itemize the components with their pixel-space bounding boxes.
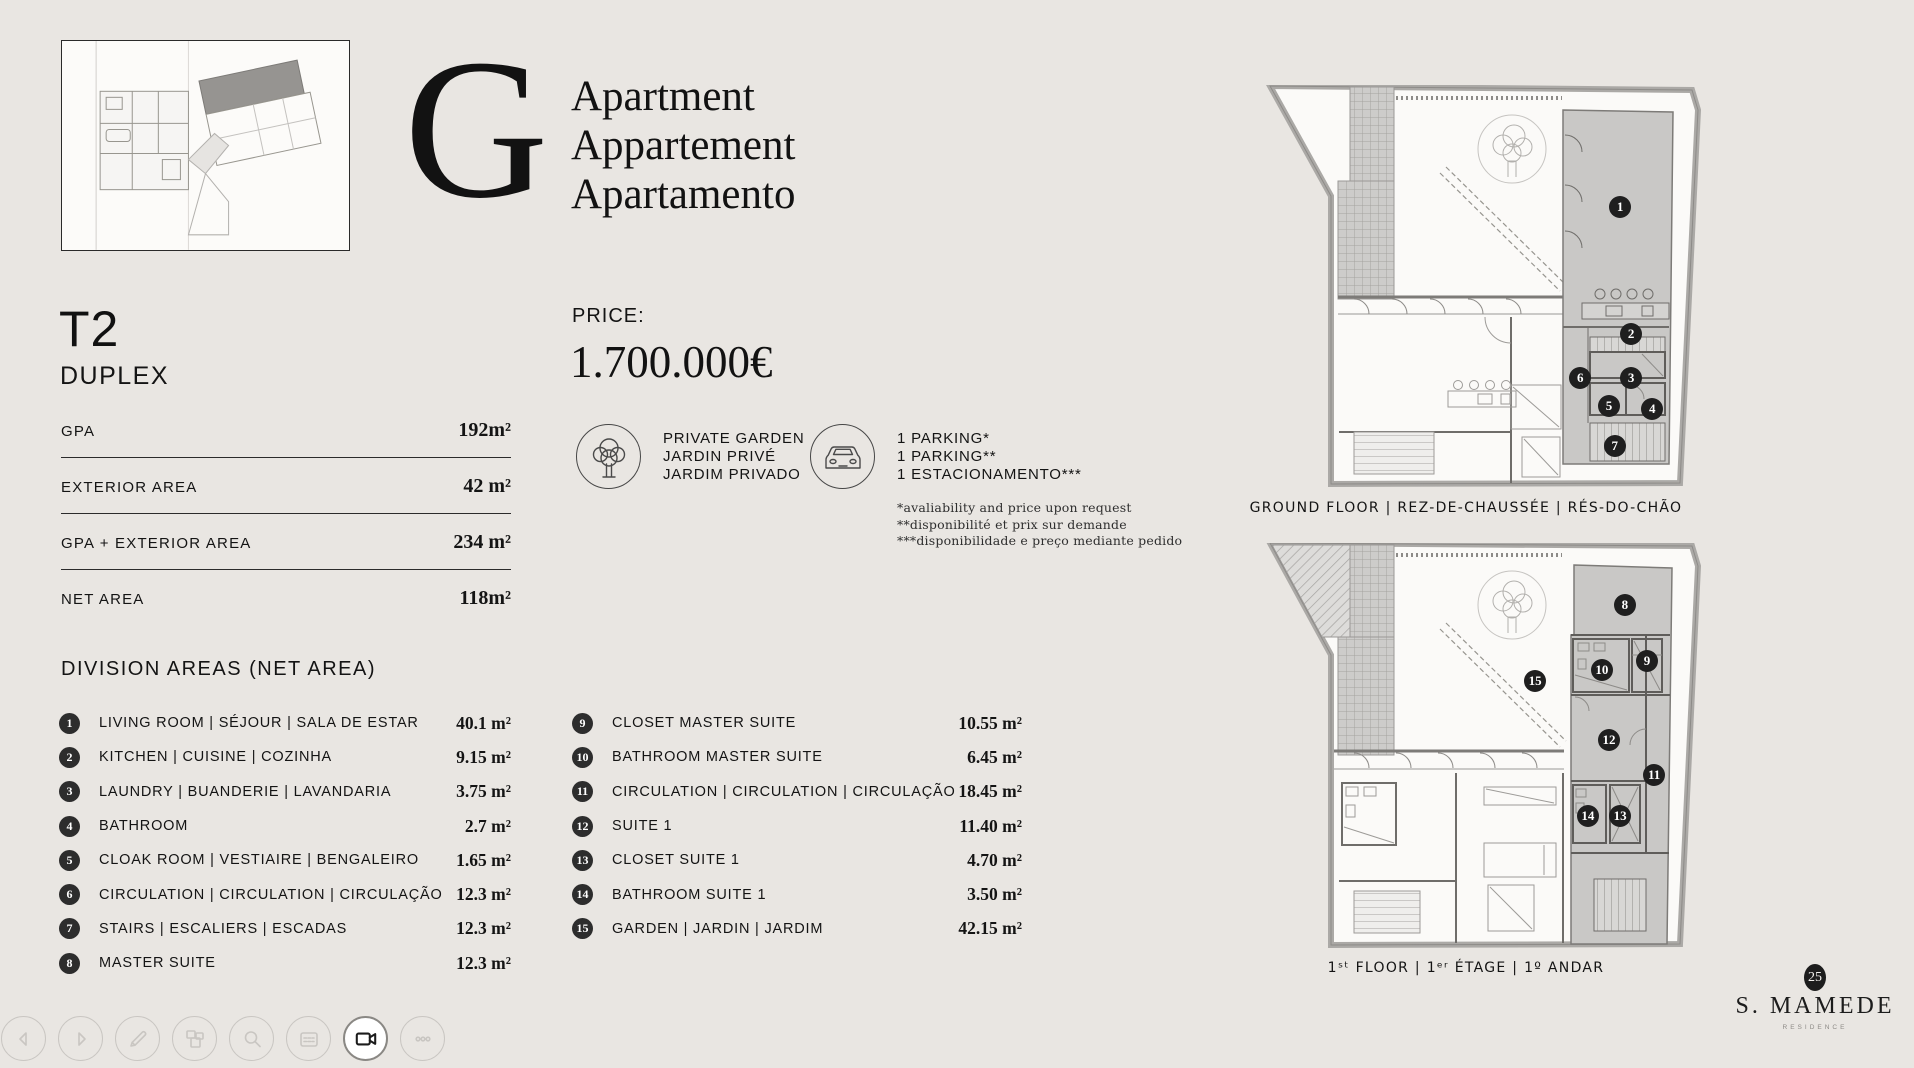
price-value: 1.700.000€ [570, 336, 773, 388]
room-number-badge: 11 [572, 781, 593, 802]
page: G Apartment Appartement Apartamento T2 D… [0, 0, 1914, 1068]
room-label: CLOSET SUITE 1 [612, 852, 740, 868]
area-row: EXTERIOR AREA42 m² [61, 458, 511, 514]
room-number-badge: 6 [59, 884, 80, 905]
more-button[interactable] [400, 1016, 445, 1061]
title-line-fr: Appartement [571, 121, 795, 170]
division-row: 14BATHROOM SUITE 13.50 m² [572, 877, 1022, 911]
room-area-value: 6.45 m² [967, 747, 1022, 768]
room-area-value: 40.1 m² [456, 713, 511, 734]
room-area-value: 1.65 m² [456, 850, 511, 871]
brand-logo: 25 S. MAMEDE RESIDENCE [1733, 964, 1897, 1031]
previous-icon [12, 1027, 36, 1051]
room-label: GARDEN | JARDIN | JARDIM [612, 921, 823, 937]
room-label: KITCHEN | CUISINE | COZINHA [99, 749, 332, 765]
ground-floor-caption: GROUND FLOOR | REZ-DE-CHAUSSÉE | RÉS-DO-… [1226, 500, 1706, 516]
room-label: CIRCULATION | CIRCULATION | CIRCULAÇÃO [612, 784, 956, 800]
garden-label-fr: JARDIN PRIVÉ [663, 448, 805, 466]
unit-layout: DUPLEX [60, 362, 169, 391]
room-label: CLOSET MASTER SUITE [612, 715, 796, 731]
room-area-value: 18.45 m² [958, 781, 1022, 802]
room-label: CIRCULATION | CIRCULATION | CIRCULAÇÃO [99, 887, 443, 903]
title-line-pt: Apartamento [571, 170, 795, 219]
area-label: EXTERIOR AREA [61, 479, 197, 496]
more-icon [411, 1027, 435, 1051]
area-label: GPA + EXTERIOR AREA [61, 535, 252, 552]
room-number-badge: 8 [59, 953, 80, 974]
parking-label-fr: 1 PARKING** [897, 448, 1082, 466]
room-label: MASTER SUITE [99, 955, 216, 971]
division-areas-heading: DIVISION AREAS (NET AREA) [61, 658, 376, 681]
parking-label-pt: 1 ESTACIONAMENTO*** [897, 466, 1082, 484]
private-garden-feature [576, 424, 641, 489]
site-plan-thumbnail [61, 40, 350, 251]
room-label: SUITE 1 [612, 818, 672, 834]
parking-labels: 1 PARKING* 1 PARKING** 1 ESTACIONAMENTO*… [897, 430, 1082, 485]
apartment-letter: G [404, 30, 548, 230]
unit-type: T2 [59, 300, 119, 358]
area-row: GPA192m² [61, 402, 511, 458]
summary-areas-table: GPA192m²EXTERIOR AREA42 m²GPA + EXTERIOR… [61, 402, 511, 625]
next-icon [69, 1027, 93, 1051]
footnote-1: *avaliability and price upon request [897, 500, 1182, 517]
area-value: 42 m² [463, 475, 511, 498]
room-number-badge: 12 [572, 816, 593, 837]
room-area-value: 42.15 m² [958, 918, 1022, 939]
division-row: 6CIRCULATION | CIRCULATION | CIRCULAÇÃO1… [59, 877, 511, 911]
site-plan-thumbnail-drawing [62, 41, 349, 250]
room-area-value: 10.55 m² [958, 713, 1022, 734]
notes-icon [297, 1027, 321, 1051]
room-area-value: 4.70 m² [967, 850, 1022, 871]
area-row: GPA + EXTERIOR AREA234 m² [61, 514, 511, 570]
room-number-badge: 2 [59, 747, 80, 768]
room-area-value: 12.3 m² [456, 953, 511, 974]
room-number-badge: 10 [572, 747, 593, 768]
garden-labels: PRIVATE GARDEN JARDIN PRIVÉ JARDIM PRIVA… [663, 430, 805, 485]
apartment-title: Apartment Appartement Apartamento [571, 72, 795, 219]
room-label: LAUNDRY | BUANDERIE | LAVANDARIA [99, 784, 391, 800]
room-number-badge: 5 [59, 850, 80, 871]
room-area-value: 12.3 m² [456, 918, 511, 939]
viewer-toolbar [1, 1016, 445, 1061]
pages-icon [183, 1027, 207, 1051]
room-area-value: 3.50 m² [967, 884, 1022, 905]
first-floor-plan-drawing [1226, 543, 1706, 957]
title-line-en: Apartment [571, 72, 795, 121]
division-areas-right-column: 9CLOSET MASTER SUITE10.55 m²10BATHROOM M… [572, 706, 1022, 946]
area-label: NET AREA [61, 591, 145, 608]
price-label: PRICE: [572, 305, 645, 328]
room-number-badge: 3 [59, 781, 80, 802]
room-number-badge: 15 [572, 918, 593, 939]
annotate-button[interactable] [115, 1016, 160, 1061]
ground-floor-plan-drawing [1226, 85, 1706, 497]
room-area-value: 12.3 m² [456, 884, 511, 905]
tree-icon [588, 433, 630, 481]
room-label: BATHROOM [99, 818, 188, 834]
video-camera-icon [353, 1026, 379, 1052]
division-row: 5CLOAK ROOM | VESTIAIRE | BENGALEIRO1.65… [59, 843, 511, 877]
division-row: 4BATHROOM2.7 m² [59, 809, 511, 843]
pen-icon [126, 1027, 150, 1051]
area-row: NET AREA118m² [61, 570, 511, 625]
logo-name: S. MAMEDE [1733, 993, 1897, 1020]
division-areas-left-column: 1LIVING ROOM | SÉJOUR | SALA DE ESTAR40.… [59, 706, 511, 980]
garden-label-pt: JARDIM PRIVADO [663, 466, 805, 484]
room-label: LIVING ROOM | SÉJOUR | SALA DE ESTAR [99, 715, 419, 731]
search-icon [240, 1027, 264, 1051]
logo-25-badge: 25 [1804, 964, 1826, 991]
division-row: 15GARDEN | JARDIN | JARDIM42.15 m² [572, 912, 1022, 946]
room-label: STAIRS | ESCALIERS | ESCADAS [99, 921, 347, 937]
division-row: 8MASTER SUITE12.3 m² [59, 946, 511, 980]
first-floor-caption: 1ˢᵗ FLOOR | 1ᵉʳ ÉTAGE | 1º ANDAR [1226, 960, 1706, 976]
area-label: GPA [61, 423, 95, 440]
parking-footnotes: *avaliability and price upon request **d… [897, 500, 1182, 550]
division-row: 10BATHROOM MASTER SUITE6.45 m² [572, 740, 1022, 774]
room-number-badge: 7 [59, 918, 80, 939]
footnote-3: ***disponibilidade e preço mediante pedi… [897, 533, 1182, 550]
room-number-badge: 1 [59, 713, 80, 734]
parking-label-en: 1 PARKING* [897, 430, 1082, 448]
first-floor-plan: 89101112131415 [1226, 543, 1706, 957]
pages-button[interactable] [172, 1016, 217, 1061]
logo-subtitle: RESIDENCE [1733, 1024, 1897, 1031]
car-icon [820, 441, 866, 473]
division-row: 9CLOSET MASTER SUITE10.55 m² [572, 706, 1022, 740]
garden-label-en: PRIVATE GARDEN [663, 430, 805, 448]
area-value: 118m² [459, 587, 511, 610]
ground-floor-plan: 1234567 [1226, 85, 1706, 497]
area-value: 234 m² [453, 531, 511, 554]
division-row: 11CIRCULATION | CIRCULATION | CIRCULAÇÃO… [572, 775, 1022, 809]
search-button[interactable] [229, 1016, 274, 1061]
room-label: BATHROOM MASTER SUITE [612, 749, 823, 765]
division-row: 12SUITE 111.40 m² [572, 809, 1022, 843]
room-label: BATHROOM SUITE 1 [612, 887, 766, 903]
area-value: 192m² [458, 419, 511, 442]
division-row: 3LAUNDRY | BUANDERIE | LAVANDARIA3.75 m² [59, 775, 511, 809]
room-number-badge: 4 [59, 816, 80, 837]
previous-button[interactable] [1, 1016, 46, 1061]
room-area-value: 11.40 m² [959, 816, 1022, 837]
next-button[interactable] [58, 1016, 103, 1061]
room-number-badge: 14 [572, 884, 593, 905]
camera-button[interactable] [343, 1016, 388, 1061]
notes-button[interactable] [286, 1016, 331, 1061]
room-number-badge: 9 [572, 713, 593, 734]
division-row: 7STAIRS | ESCALIERS | ESCADAS12.3 m² [59, 912, 511, 946]
division-row: 1LIVING ROOM | SÉJOUR | SALA DE ESTAR40.… [59, 706, 511, 740]
parking-feature [810, 424, 875, 489]
room-area-value: 2.7 m² [465, 816, 511, 837]
division-row: 2KITCHEN | CUISINE | COZINHA9.15 m² [59, 740, 511, 774]
division-row: 13CLOSET SUITE 14.70 m² [572, 843, 1022, 877]
room-label: CLOAK ROOM | VESTIAIRE | BENGALEIRO [99, 852, 419, 868]
room-area-value: 3.75 m² [456, 781, 511, 802]
footnote-2: **disponibilité et prix sur demande [897, 517, 1182, 534]
room-area-value: 9.15 m² [456, 747, 511, 768]
room-number-badge: 13 [572, 850, 593, 871]
